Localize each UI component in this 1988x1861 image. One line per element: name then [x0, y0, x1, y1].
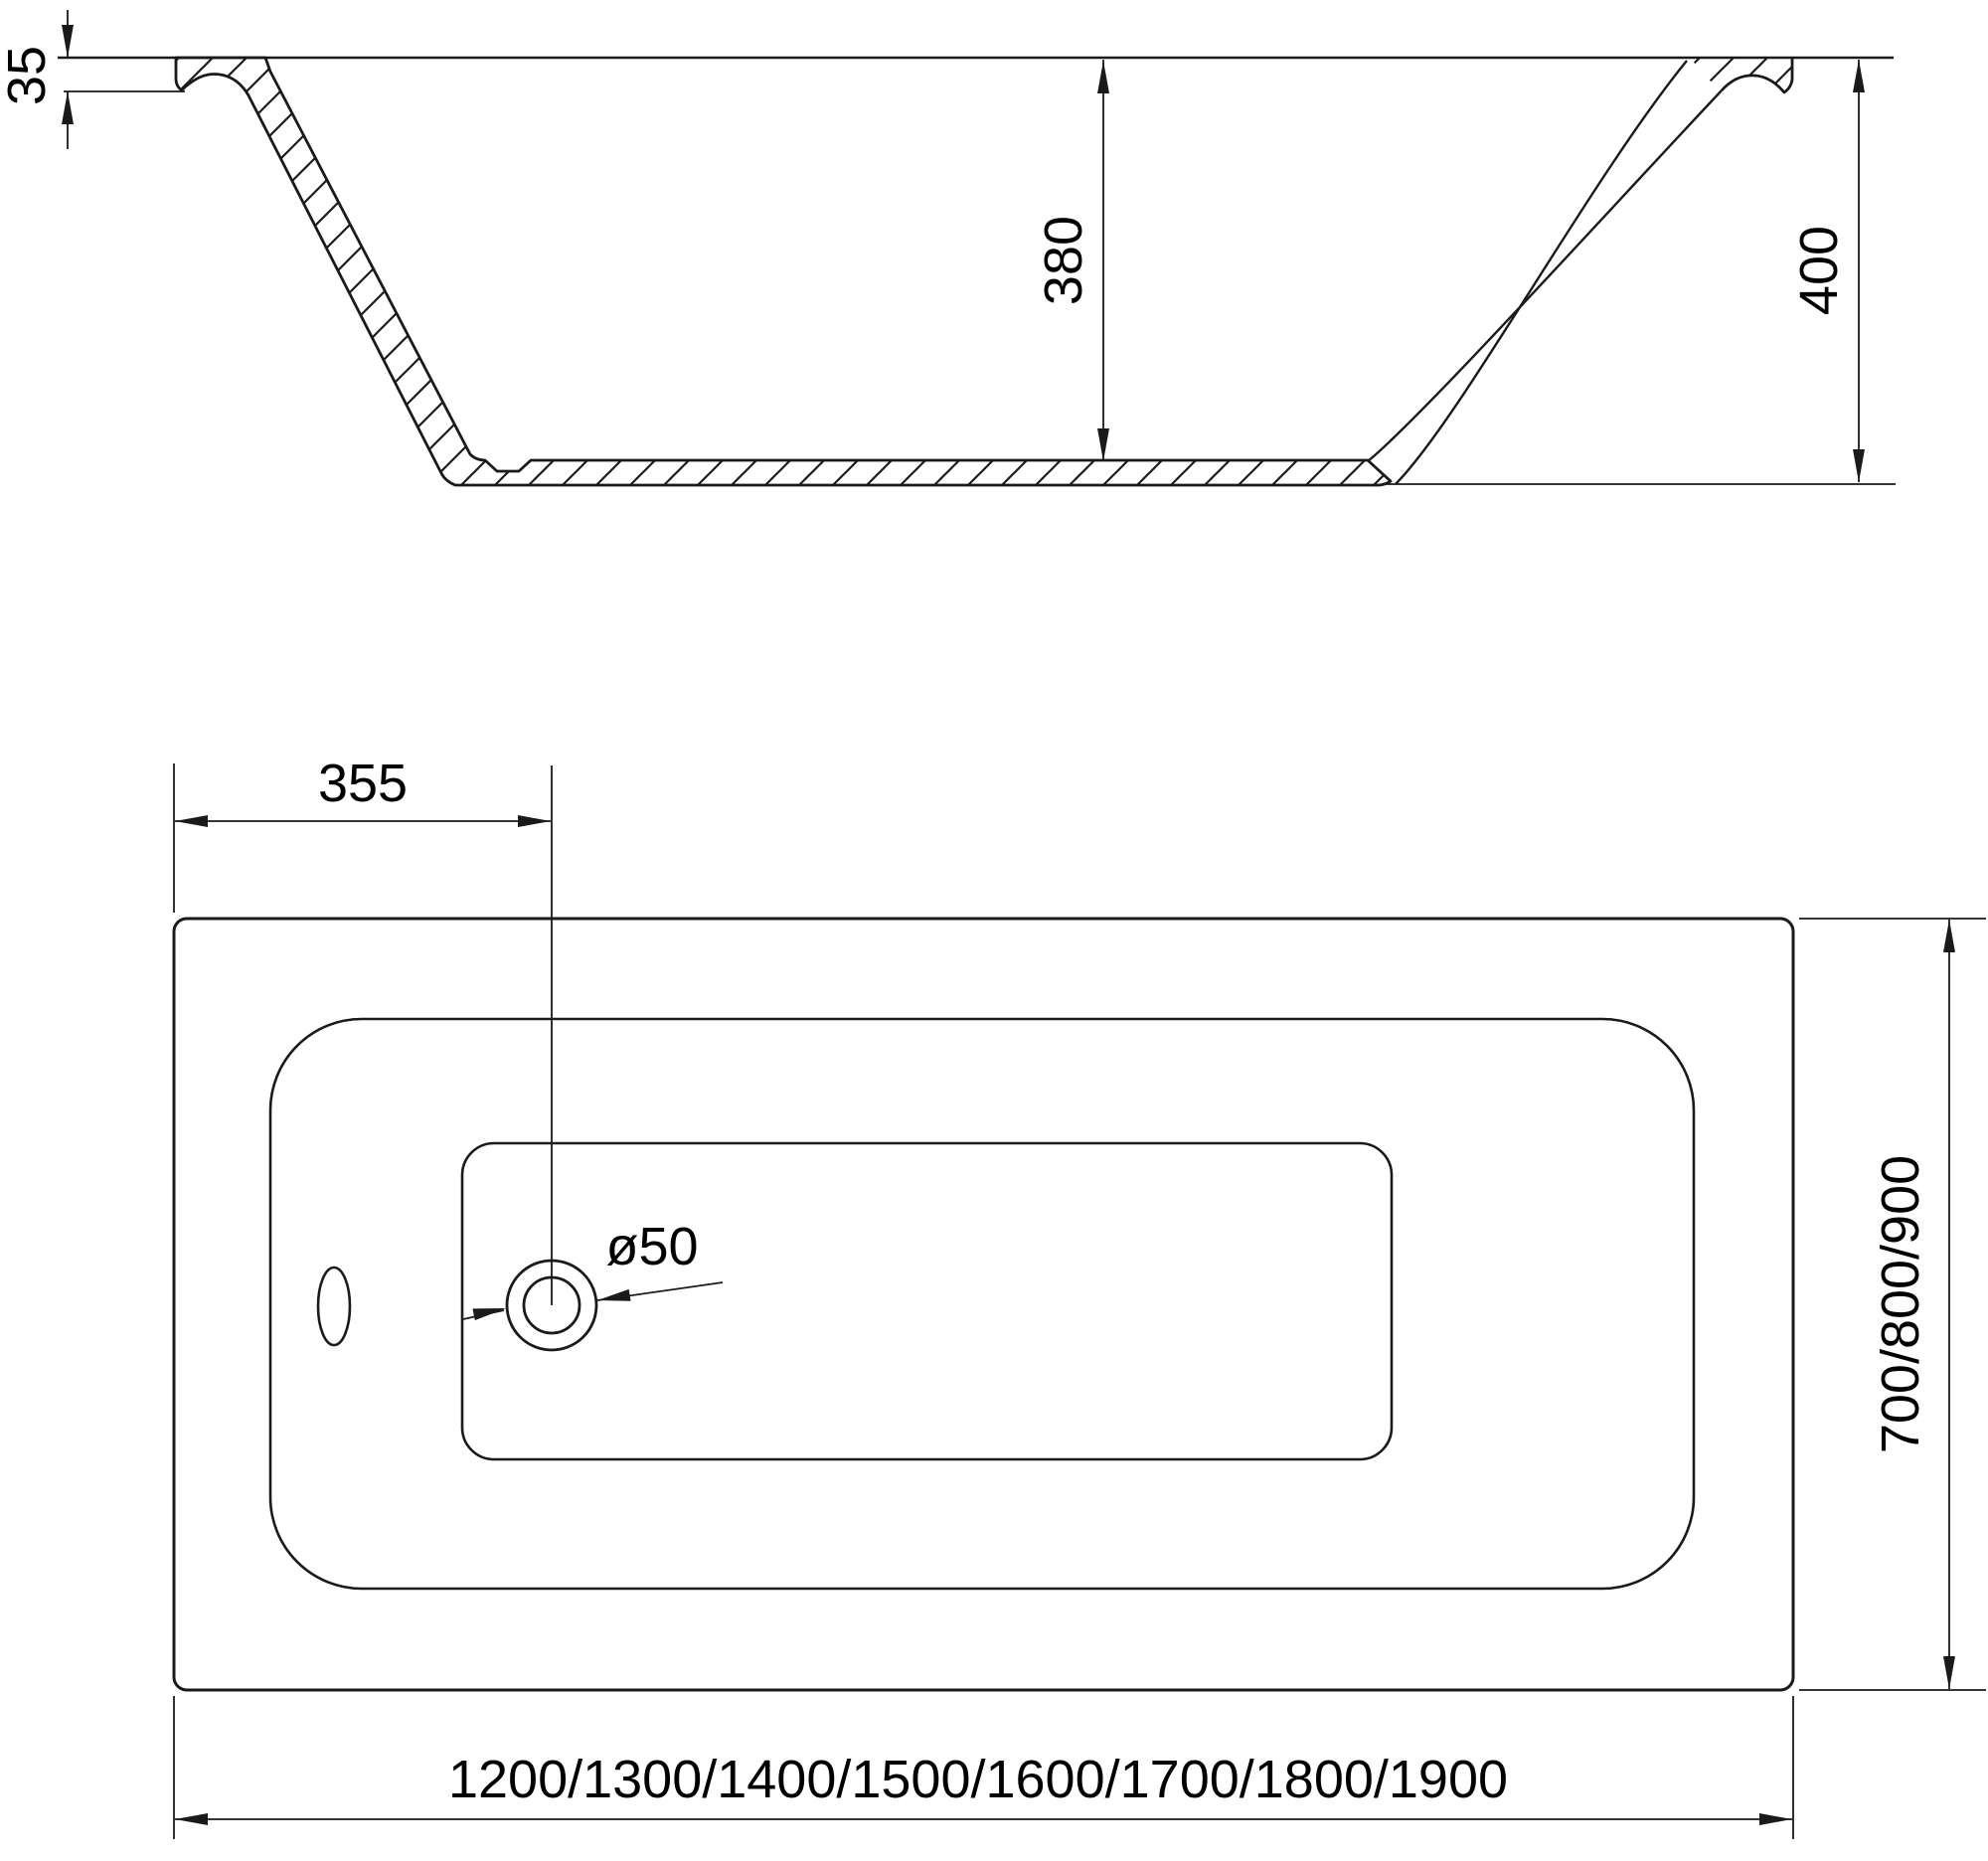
- tub-shell-left-wall-and-floor: [176, 58, 1391, 485]
- dimension-length-options: 1200/1300/1400/1500/1600/1700/1800/1900: [174, 1696, 1793, 1839]
- rim-thickness-label: 35: [0, 46, 57, 105]
- plan-view-top: 355 ø50 1200/1300/1400/1500/1600/1700/18…: [174, 754, 1986, 1839]
- technical-drawing-canvas: 35 380 400: [0, 0, 1988, 1861]
- dimension-overall-height: 400: [1789, 60, 1865, 482]
- overflow-hole: [318, 1268, 350, 1345]
- overall-height-label: 400: [1789, 226, 1849, 315]
- dimension-rim-thickness: 35: [0, 10, 74, 149]
- backrest-slope-inner-line: [1368, 90, 1722, 461]
- dimension-width-options: 700/800/900: [1799, 919, 1986, 1690]
- plan-outer-outline: [174, 919, 1793, 1690]
- tub-shell-right-rim: [1690, 58, 1792, 92]
- drain-offset-label: 355: [318, 754, 408, 813]
- length-options-label: 1200/1300/1400/1500/1600/1700/1800/1900: [448, 1750, 1508, 1809]
- dimension-inner-depth: 380: [1034, 60, 1109, 461]
- width-options-label: 700/800/900: [1871, 1155, 1930, 1453]
- dimension-drain-diameter: ø50: [463, 1217, 723, 1320]
- dimension-drain-offset: 355: [174, 754, 551, 913]
- drain-diameter-label: ø50: [605, 1217, 698, 1276]
- side-view-cross-section: 35 380 400: [0, 10, 1896, 485]
- plan-basin-floor-outline: [462, 1143, 1392, 1459]
- bathtub-technical-drawing: 35 380 400: [0, 0, 1988, 1861]
- plan-rim-inner-edge: [270, 1019, 1694, 1589]
- inner-depth-label: 380: [1034, 216, 1093, 305]
- backrest-slope-outer-line: [1396, 61, 1687, 484]
